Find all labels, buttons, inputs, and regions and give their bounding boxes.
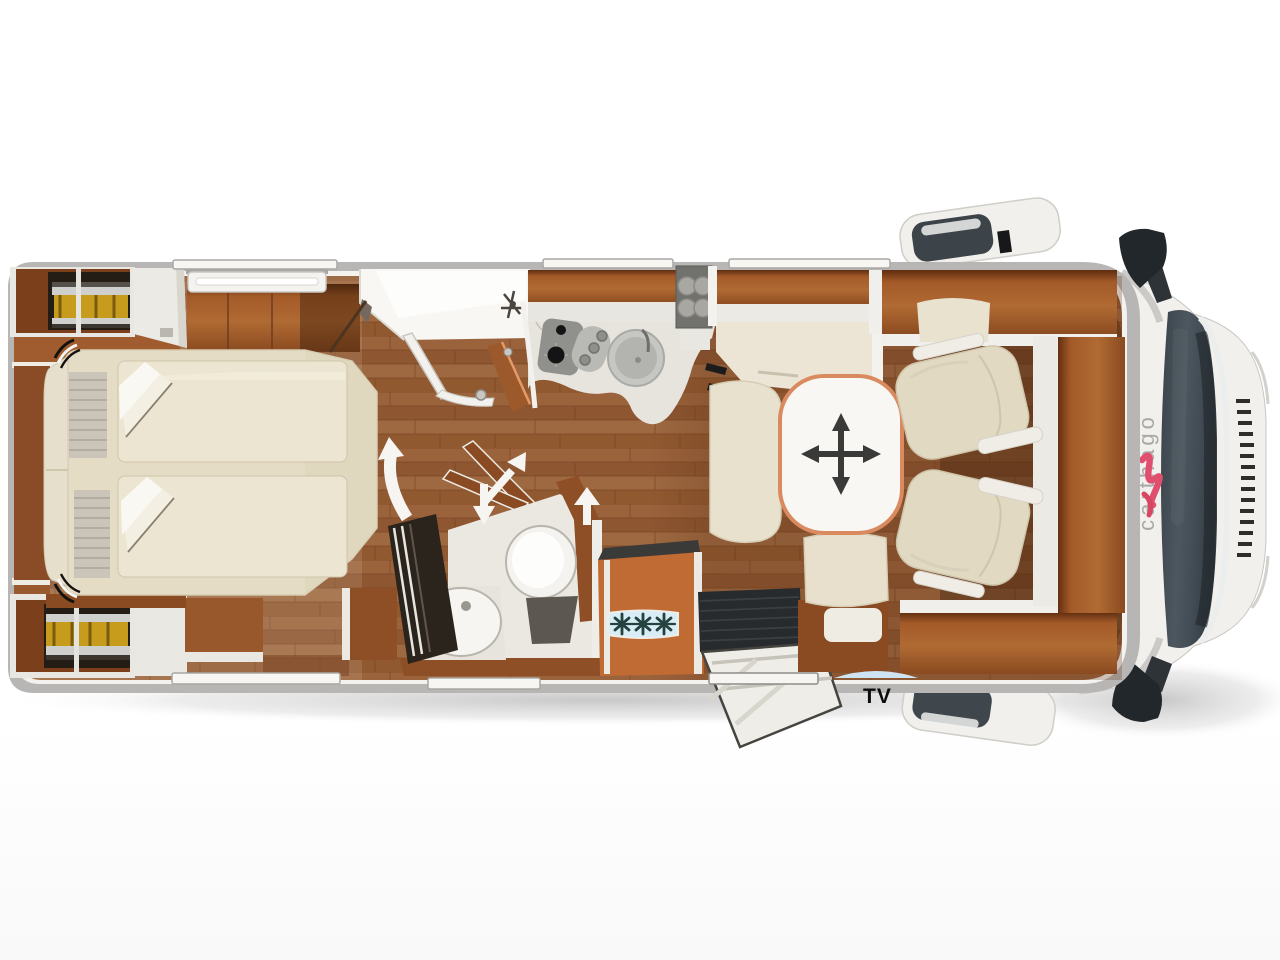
svg-text:TV: TV xyxy=(863,685,892,708)
